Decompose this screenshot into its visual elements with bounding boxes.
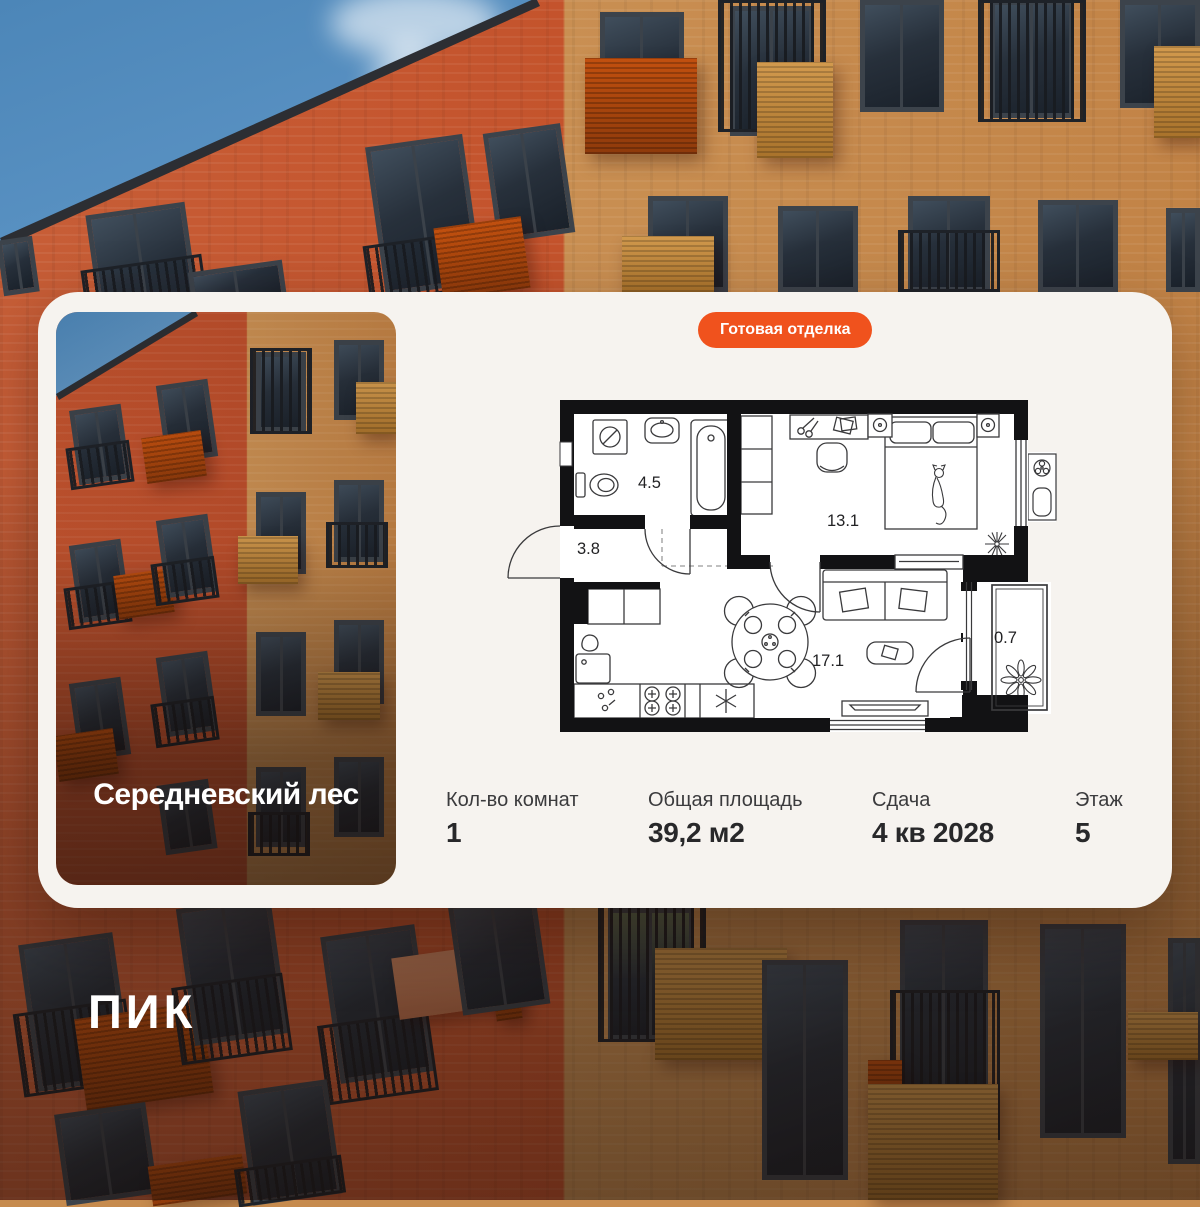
stat-label: Кол-во комнат <box>446 790 578 810</box>
bedroom-dresser <box>895 555 963 569</box>
photo-panel: Середневский лес <box>56 312 396 885</box>
entry-door <box>508 526 560 578</box>
stat-floor: Этаж 5 <box>1075 790 1123 847</box>
dining-table <box>732 604 808 680</box>
pik-logo: ПИК <box>88 984 196 1039</box>
listing-card[interactable]: Середневский лес Готовая отделка <box>38 292 1172 908</box>
room-label-hallway: 3.8 <box>577 540 600 558</box>
stat-value: 4 кв 2028 <box>872 819 994 847</box>
room-label-bathroom: 4.5 <box>638 474 661 492</box>
stats-row: Кол-во комнат 1 Общая площадь 39,2 м2 Сд… <box>446 790 1146 860</box>
room-label-living: 17.1 <box>812 652 844 670</box>
room-label-balcony: 0.7 <box>994 629 1017 647</box>
finish-badge: Готовая отделка <box>698 312 872 348</box>
stat-label: Общая площадь <box>648 790 803 810</box>
stat-value: 39,2 м2 <box>648 819 803 847</box>
bedroom-plant <box>985 532 1009 556</box>
sconce <box>868 414 892 437</box>
stat-label: Этаж <box>1075 790 1123 810</box>
sconce <box>977 414 999 437</box>
room-label-bedroom: 13.1 <box>827 512 859 530</box>
stat-value: 5 <box>1075 819 1123 847</box>
tv-console <box>842 701 928 716</box>
stat-label: Сдача <box>872 790 994 810</box>
stat-completion: Сдача 4 кв 2028 <box>872 790 994 847</box>
floorplan: 4.5 3.8 13.1 17.1 0.7 <box>505 396 1057 736</box>
stat-value: 1 <box>446 819 578 847</box>
stat-area: Общая площадь 39,2 м2 <box>648 790 803 847</box>
project-name: Середневский лес <box>56 778 396 812</box>
stat-rooms: Кол-во комнат 1 <box>446 790 578 847</box>
